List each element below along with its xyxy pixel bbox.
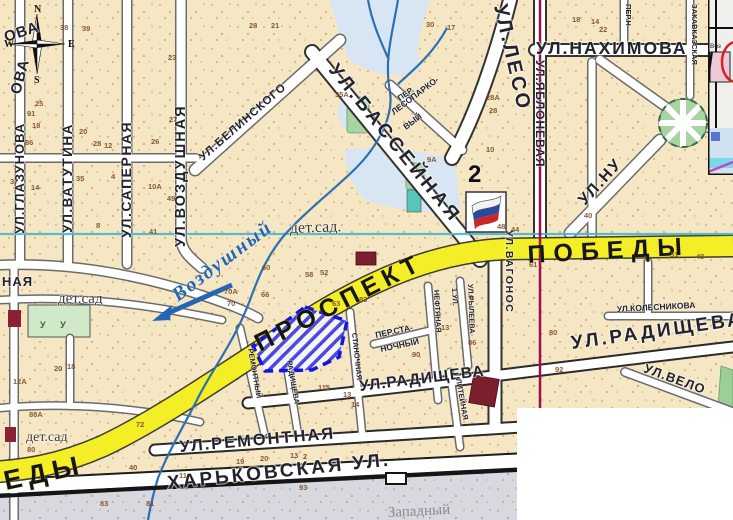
compass-n: N bbox=[34, 4, 42, 15]
house-number: 35А bbox=[335, 90, 349, 99]
house-number: 83 bbox=[100, 499, 108, 508]
house-number: 81 bbox=[146, 499, 154, 508]
house-number: 38 bbox=[60, 23, 68, 32]
house-number: 20 bbox=[79, 127, 87, 136]
house-number: 26 bbox=[151, 137, 159, 146]
compass-s: S bbox=[34, 75, 40, 86]
house-number: 66 bbox=[261, 290, 269, 299]
house-number: 13 bbox=[343, 390, 351, 399]
house-number: 91 bbox=[27, 109, 35, 118]
street-label-vatutina: УЛ.ВАТУТИНА bbox=[60, 123, 75, 233]
inset-place-label: Воз bbox=[710, 43, 721, 50]
blank-area bbox=[517, 408, 733, 520]
house-number: 11 bbox=[179, 471, 187, 480]
house-number: 12А bbox=[13, 377, 27, 386]
street-label-sapernaya: УЛ.САПЕРНАЯ bbox=[118, 121, 134, 238]
zone-number: 2 bbox=[468, 161, 481, 188]
bridge-symbol bbox=[386, 473, 406, 484]
house-number: 63 bbox=[332, 299, 340, 308]
house-number: 14 bbox=[591, 17, 600, 26]
inset-overview-map: Воз bbox=[708, 0, 733, 175]
street-label-per-n: ПЕР.Н bbox=[624, 4, 633, 26]
house-number: 9А bbox=[427, 155, 437, 164]
house-number: 23 bbox=[168, 53, 176, 62]
house-number: 2 bbox=[303, 452, 307, 461]
street-label-zakavkazskaya: ЗАКАВКАЗСКАЯ bbox=[690, 4, 699, 65]
house-number: 48 bbox=[497, 222, 505, 231]
house-number: 12 bbox=[104, 141, 112, 150]
house-number: 49 bbox=[696, 252, 704, 261]
house-number: 28 bbox=[489, 106, 497, 115]
house-number: 27 bbox=[169, 115, 177, 124]
house-number: 30 bbox=[426, 20, 434, 29]
place-label-zapadny-district: Западный bbox=[387, 502, 450, 520]
house-number: 70 bbox=[227, 299, 235, 308]
house-number: 17 bbox=[447, 23, 455, 32]
house-number: 49 bbox=[167, 194, 175, 203]
house-number: 70А bbox=[224, 287, 238, 296]
house-number: 58 bbox=[305, 270, 313, 279]
house-number: 61 bbox=[529, 260, 537, 269]
compass-e: E bbox=[68, 39, 75, 50]
house-number: 25 bbox=[35, 99, 43, 108]
house-number: 37 bbox=[10, 177, 18, 186]
house-number: 92 bbox=[555, 365, 563, 374]
house-number: 86 bbox=[468, 338, 476, 347]
house-number: 60 bbox=[262, 263, 270, 272]
city-map[interactable]: N S W E 2 УЛ.ГЛАЗУНОВАУЛ.ВАТУТИНАУЛ.САПЕ… bbox=[0, 0, 733, 520]
house-number: 40 bbox=[584, 211, 592, 220]
house-number: 6 bbox=[469, 293, 473, 302]
house-number: 80А bbox=[29, 410, 43, 419]
street-label-ul-1: 1.УЛ. bbox=[450, 288, 460, 306]
house-number: 39 bbox=[82, 24, 90, 33]
street-label-vagonos: УЛ.ВАГОНОС bbox=[503, 230, 515, 313]
house-number: 14 bbox=[31, 183, 40, 192]
house-number: 8 bbox=[96, 221, 100, 230]
place-label-det-sad-1: дет.сад. bbox=[290, 218, 342, 237]
house-number: 22 bbox=[599, 25, 607, 34]
house-number: 80 bbox=[549, 328, 557, 337]
street-label-nakhimova: УЛ.НАХИМОВА bbox=[536, 38, 687, 58]
house-number: 13 bbox=[290, 451, 298, 460]
house-number: 115 bbox=[318, 383, 330, 392]
house-number: 80 bbox=[27, 445, 35, 454]
house-number: 86 bbox=[25, 138, 33, 147]
street-label-vozdushnaya-street: УЛ.ВОЗДУШНАЯ bbox=[173, 104, 189, 247]
street-label-naya-partial: НАЯ bbox=[2, 274, 33, 289]
house-number: 19 bbox=[236, 457, 244, 466]
house-number: 18 bbox=[32, 121, 40, 130]
house-number: 10 bbox=[486, 145, 494, 154]
house-number: 18 bbox=[572, 15, 580, 24]
street-label-yablonevaya: УЛ.ЯБЛОНЕВАЯ bbox=[533, 60, 547, 168]
house-number: 83 bbox=[359, 295, 367, 304]
house-number: 28 bbox=[249, 21, 257, 30]
street-label-ryleeva: УЛ.РЫЛЕЕВА bbox=[466, 284, 477, 335]
place-label-det-sad-2: дет.сад bbox=[58, 291, 103, 307]
house-number: 10А bbox=[148, 182, 162, 191]
house-number: 93 bbox=[299, 483, 307, 492]
house-number: 13 bbox=[441, 323, 449, 332]
house-number: 90 bbox=[412, 350, 420, 359]
house-number: 14 bbox=[351, 400, 360, 409]
house-number: 35 bbox=[76, 174, 84, 183]
house-number: 18 bbox=[67, 362, 75, 371]
house-number: 20 bbox=[54, 364, 62, 373]
house-number: 41 bbox=[149, 227, 157, 236]
house-number: 20 bbox=[260, 454, 268, 463]
house-number: 51 bbox=[670, 250, 678, 259]
place-label-det-sad-marks: У У bbox=[40, 320, 72, 330]
house-number: 72 bbox=[136, 420, 144, 429]
house-number: 28 bbox=[93, 139, 101, 148]
house-number: 28А bbox=[486, 93, 500, 102]
house-number: 40 bbox=[129, 463, 137, 472]
place-label-det-sad-3: дет.сад bbox=[26, 430, 68, 445]
roundabout-park bbox=[659, 99, 707, 147]
house-number: 21 bbox=[271, 21, 279, 30]
house-number: 44 bbox=[511, 225, 520, 234]
house-number: 52 bbox=[320, 268, 328, 277]
